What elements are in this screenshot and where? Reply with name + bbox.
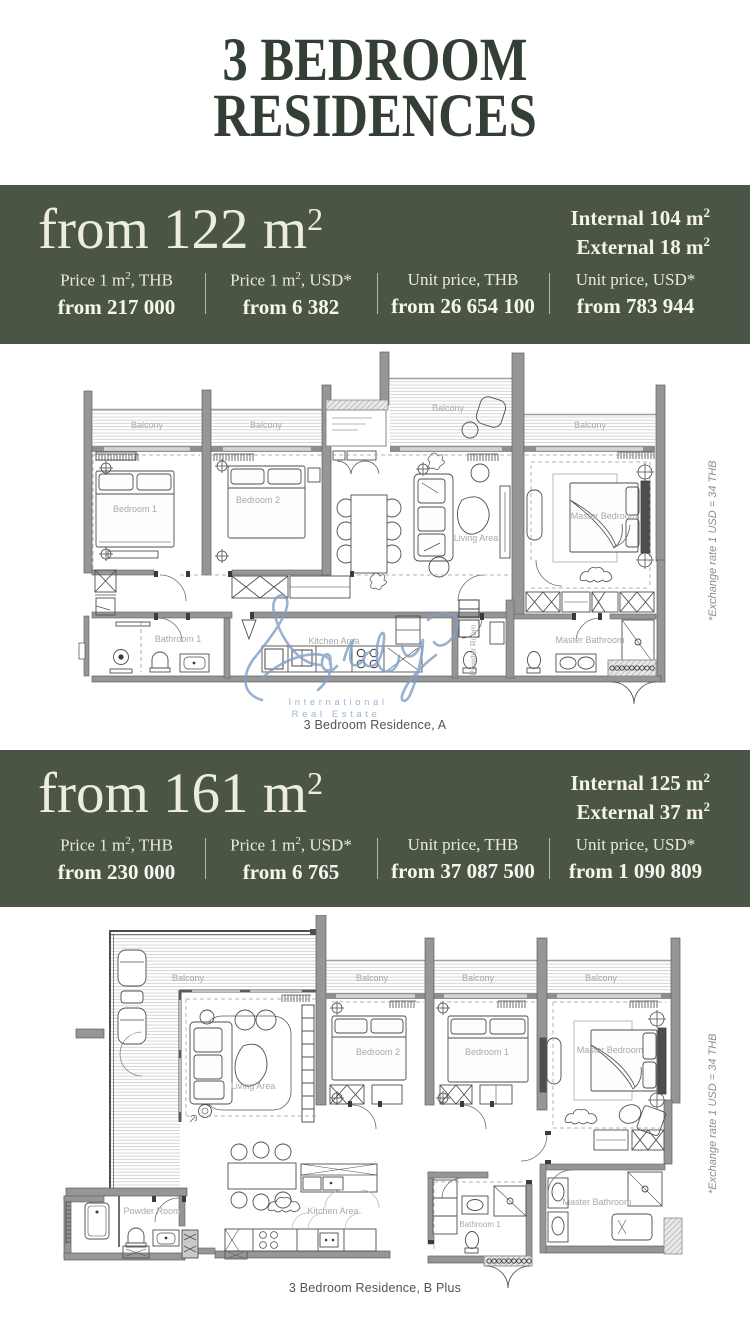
svg-text:Master Bathroom: Master Bathroom xyxy=(555,635,624,645)
svg-text:Powder Room: Powder Room xyxy=(469,624,478,675)
svg-text:Bathroom 1: Bathroom 1 xyxy=(155,634,202,644)
svg-text:Balcony: Balcony xyxy=(432,403,465,413)
svg-text:Balcony: Balcony xyxy=(462,973,495,983)
svg-text:Master Bedroom: Master Bedroom xyxy=(577,1045,644,1055)
svg-text:Balcony: Balcony xyxy=(585,973,618,983)
svg-text:Bedroom 1: Bedroom 1 xyxy=(113,504,157,514)
svg-text:Balcony: Balcony xyxy=(250,420,283,430)
svg-text:International: International xyxy=(288,697,387,708)
svg-text:Master Bathroom: Master Bathroom xyxy=(562,1197,631,1207)
svg-text:Master Bedroom: Master Bedroom xyxy=(571,511,638,521)
svg-text:Balcony: Balcony xyxy=(172,973,205,983)
svg-text:Balcony: Balcony xyxy=(356,973,389,983)
svg-text:Kitchen Area: Kitchen Area xyxy=(307,1206,358,1216)
svg-text:Living Area: Living Area xyxy=(454,533,499,543)
svg-text:Living Area: Living Area xyxy=(231,1081,276,1091)
svg-text:Bedroom 2: Bedroom 2 xyxy=(236,495,280,505)
svg-text:Powder Room: Powder Room xyxy=(123,1206,180,1216)
svg-text:Bedroom 2: Bedroom 2 xyxy=(356,1047,400,1057)
svg-text:Bathroom 1: Bathroom 1 xyxy=(459,1220,501,1229)
svg-text:Balcony: Balcony xyxy=(574,420,607,430)
svg-text:Bedroom 1: Bedroom 1 xyxy=(465,1047,509,1057)
svg-text:Balcony: Balcony xyxy=(131,420,164,430)
